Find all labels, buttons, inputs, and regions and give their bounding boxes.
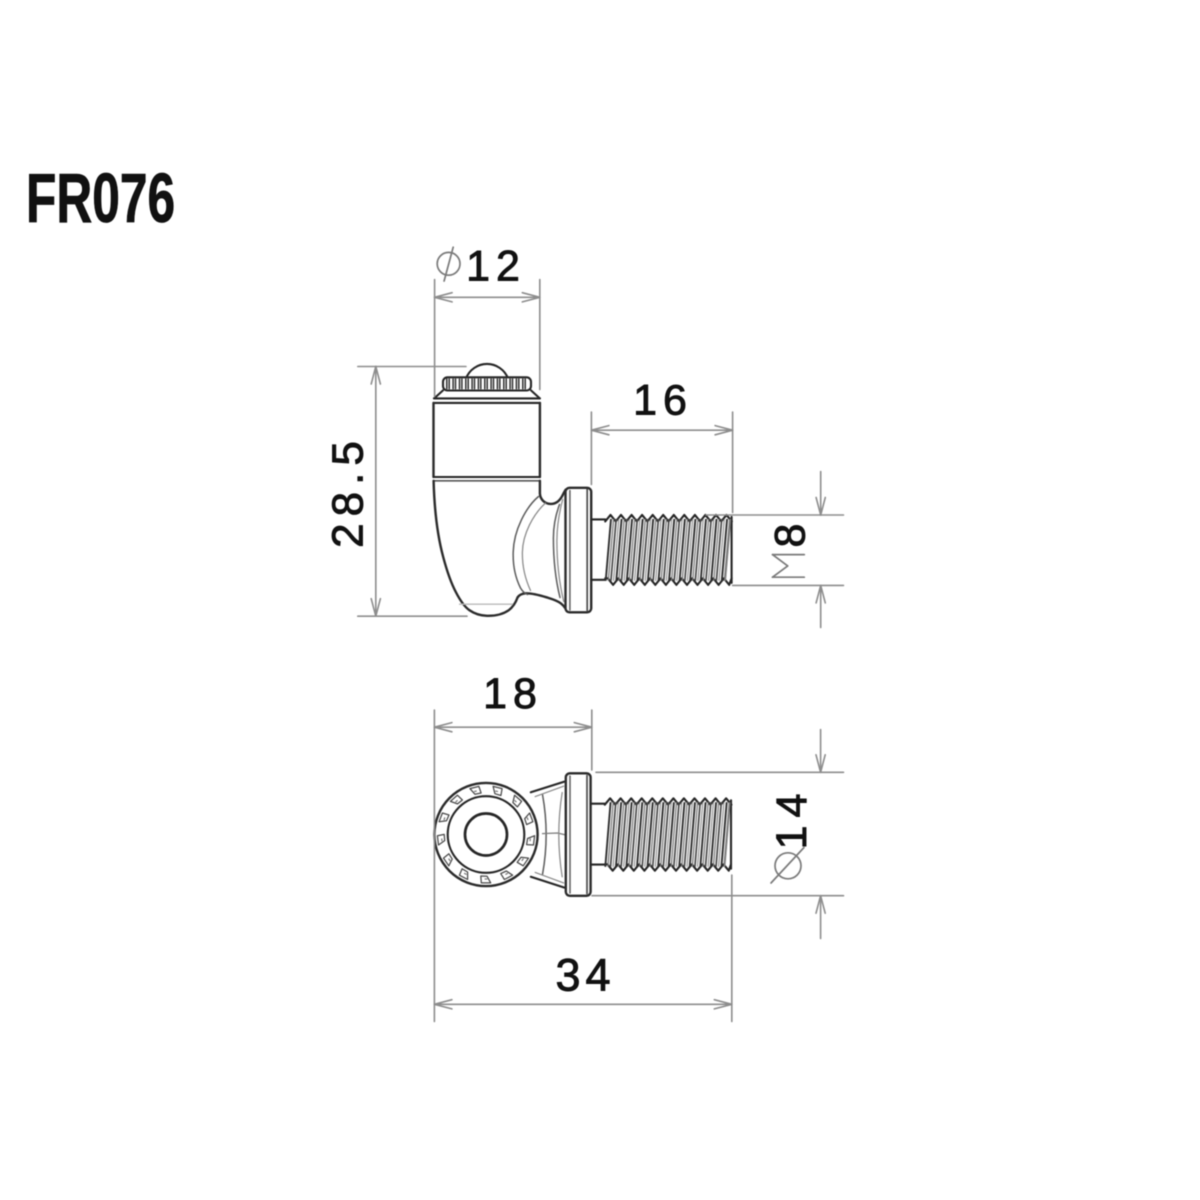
svg-text:8: 8 (767, 518, 815, 548)
svg-text:12: 12 (466, 243, 526, 291)
svg-text:18: 18 (483, 670, 543, 718)
svg-text:28.5: 28.5 (324, 434, 373, 548)
svg-text:34: 34 (555, 950, 615, 1001)
svg-text:14: 14 (768, 786, 816, 850)
svg-text:16: 16 (633, 377, 693, 425)
svg-text:FR076: FR076 (26, 159, 175, 237)
